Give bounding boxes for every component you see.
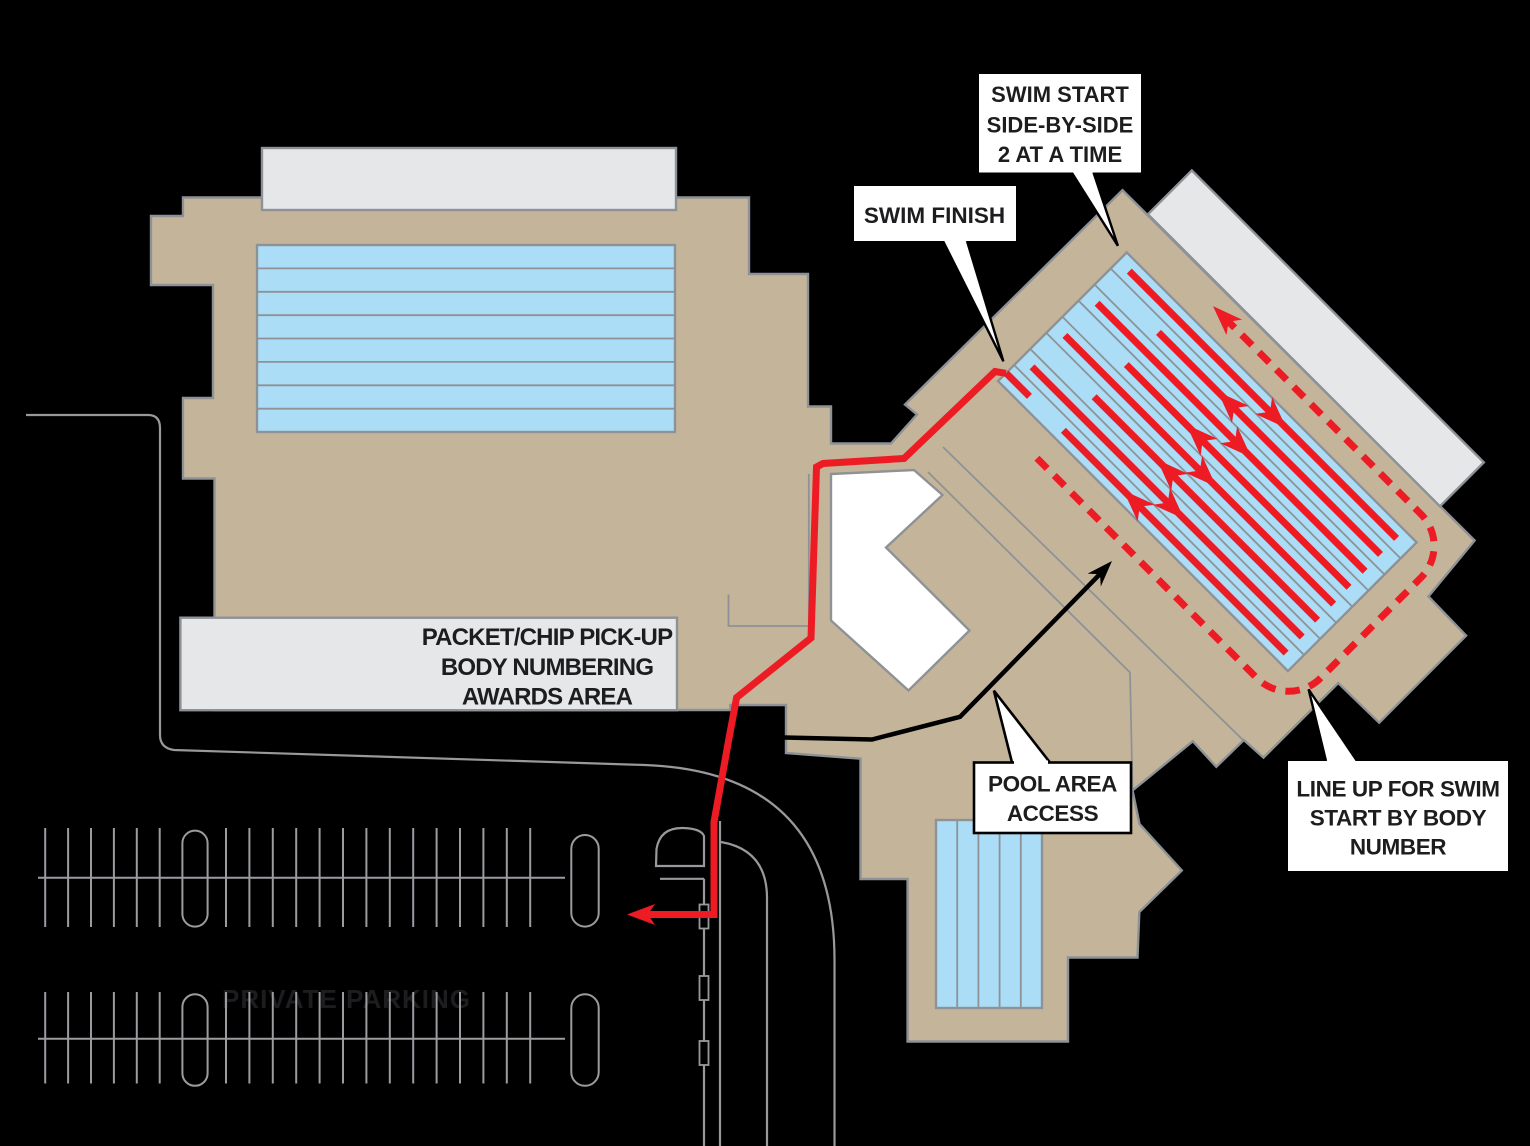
svg-text:ACCESS: ACCESS <box>1007 801 1099 826</box>
svg-text:PRIVATE PARKING: PRIVATE PARKING <box>222 984 471 1014</box>
svg-text:PACKET/CHIP PICK-UP: PACKET/CHIP PICK-UP <box>422 624 673 651</box>
svg-text:SWIM FINISH: SWIM FINISH <box>864 203 1005 228</box>
svg-text:LINE UP FOR SWIM: LINE UP FOR SWIM <box>1296 777 1499 802</box>
svg-text:START BY BODY: START BY BODY <box>1310 806 1487 831</box>
svg-text:SWIM START: SWIM START <box>991 82 1129 107</box>
svg-text:2 AT A TIME: 2 AT A TIME <box>998 142 1122 167</box>
svg-text:NUMBER: NUMBER <box>1350 835 1446 860</box>
svg-text:AWARDS AREA: AWARDS AREA <box>462 684 633 711</box>
svg-text:SIDE-BY-SIDE: SIDE-BY-SIDE <box>987 113 1134 138</box>
svg-text:BODY NUMBERING: BODY NUMBERING <box>441 654 654 681</box>
svg-text:POOL AREA: POOL AREA <box>988 772 1117 797</box>
